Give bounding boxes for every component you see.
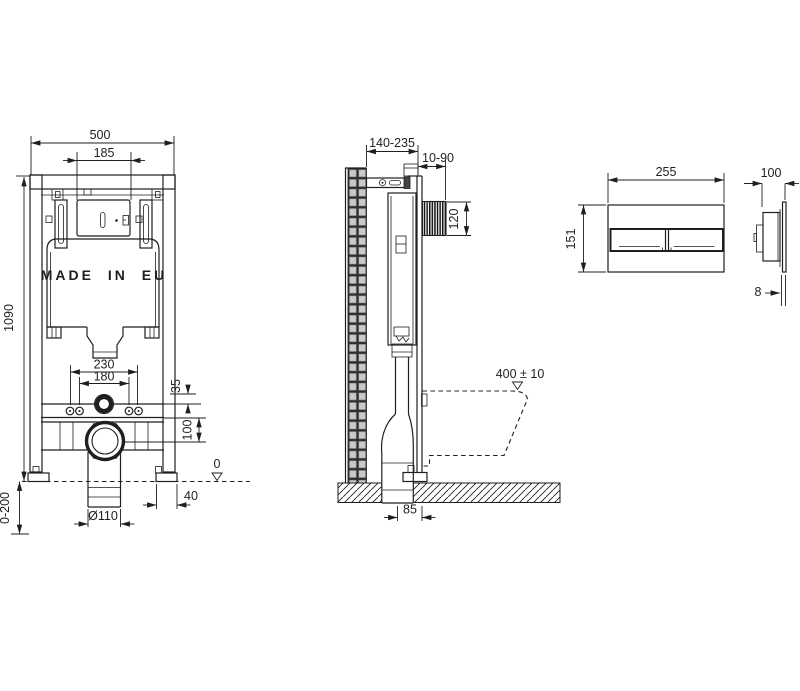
drawing-canvas: MADE IN EU: [0, 0, 800, 691]
dim-plate-width: 255: [656, 165, 677, 179]
dim-plate-thickness: 8: [755, 285, 762, 299]
dim-plate-center: 185: [94, 146, 115, 160]
plate-opening-hatched: [423, 202, 447, 236]
dim-outlet-offset: 85: [403, 503, 417, 517]
dim-frame-height: 1090: [2, 304, 16, 332]
pipe-knockout: [382, 464, 414, 503]
dim-bowl-height: 400 ± 10: [496, 367, 545, 381]
floor-hatch: [338, 483, 560, 503]
dim-inlet-offset: 35: [169, 379, 183, 393]
dim-plate-range: 10-90: [422, 151, 454, 165]
dim-frame-width: 500: [90, 128, 111, 142]
dim-plate-height: 151: [564, 229, 578, 250]
technical-drawing: MADE IN EU: [0, 0, 800, 691]
datum-zero-label: 0: [214, 457, 221, 471]
drain-outlet: [87, 423, 124, 460]
dim-foot-depth: 40: [184, 489, 198, 503]
dim-drain-diameter: Ø110: [88, 509, 118, 523]
dim-drain-offset: 100: [181, 420, 195, 441]
tile-wall: [348, 169, 367, 484]
inlet-ring: [95, 395, 114, 414]
dim-plate-depth: 100: [761, 166, 782, 180]
cistern-label: MADE IN EU: [41, 267, 167, 283]
dim-fixing-inner: 180: [94, 370, 115, 384]
dim-foot-adjust: 0-200: [0, 492, 12, 524]
dim-depth-range: 140-235: [369, 136, 415, 150]
dim-opening-height: 120: [447, 209, 461, 230]
